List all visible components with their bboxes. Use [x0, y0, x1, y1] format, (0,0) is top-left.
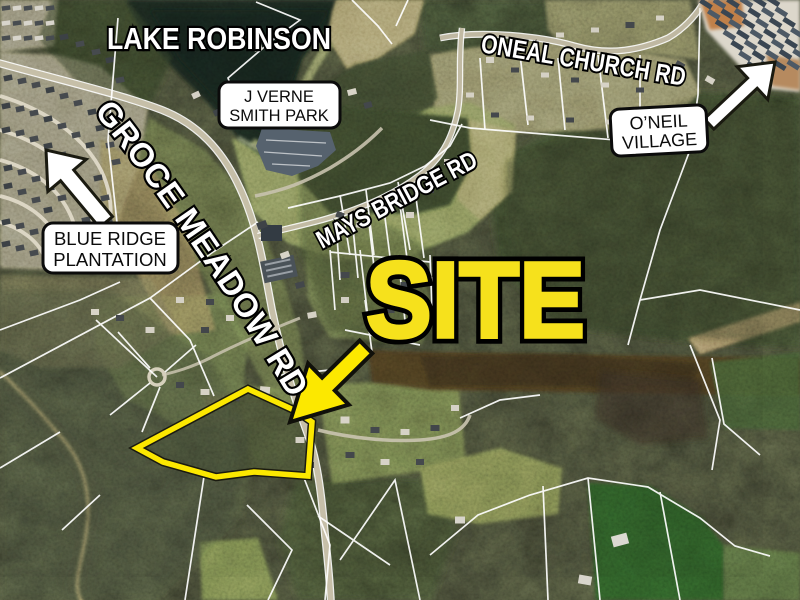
svg-text:J VERNE: J VERNE [244, 88, 314, 106]
svg-text:LAKE ROBINSON: LAKE ROBINSON [107, 21, 331, 56]
svg-text:SITE: SITE [366, 239, 585, 360]
svg-text:SMITH PARK: SMITH PARK [229, 107, 329, 125]
svg-text:BLUE RIDGE: BLUE RIDGE [54, 228, 166, 249]
svg-text:PLANTATION: PLANTATION [53, 249, 166, 270]
svg-text:VILLAGE: VILLAGE [622, 129, 698, 153]
